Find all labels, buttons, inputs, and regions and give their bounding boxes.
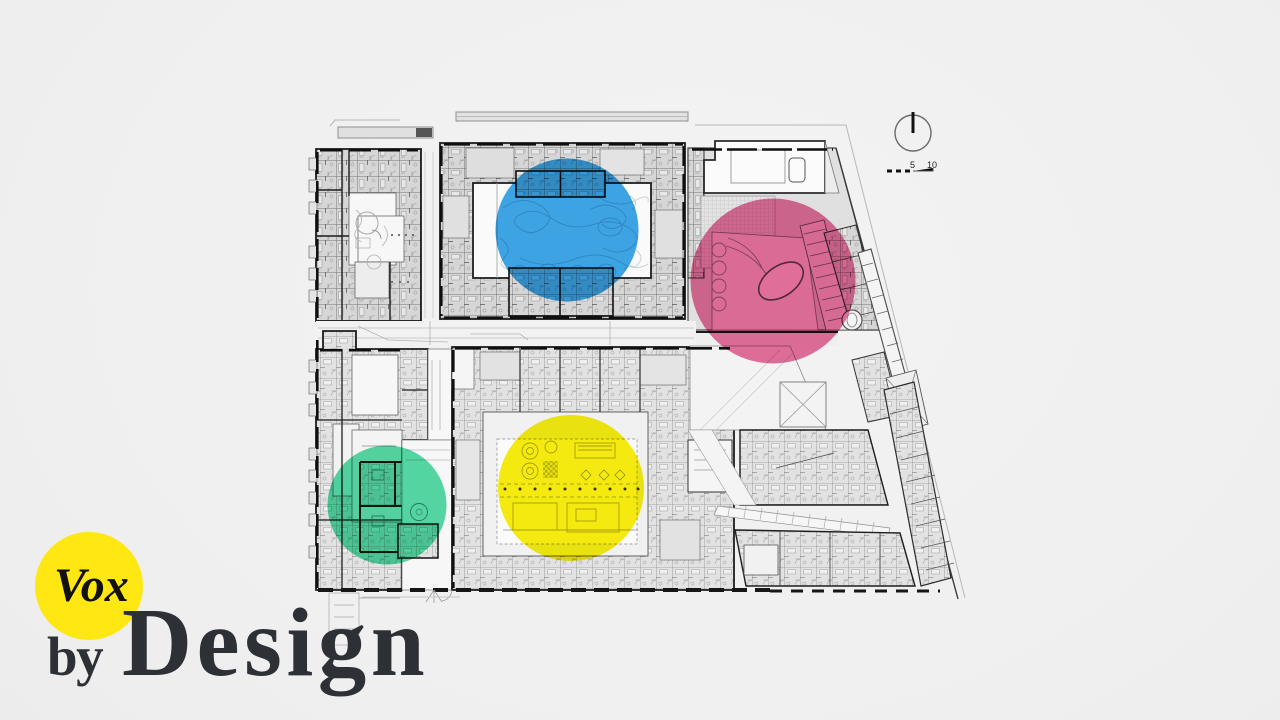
svg-text:10: 10 <box>927 160 937 170</box>
svg-text:5: 5 <box>910 160 915 170</box>
